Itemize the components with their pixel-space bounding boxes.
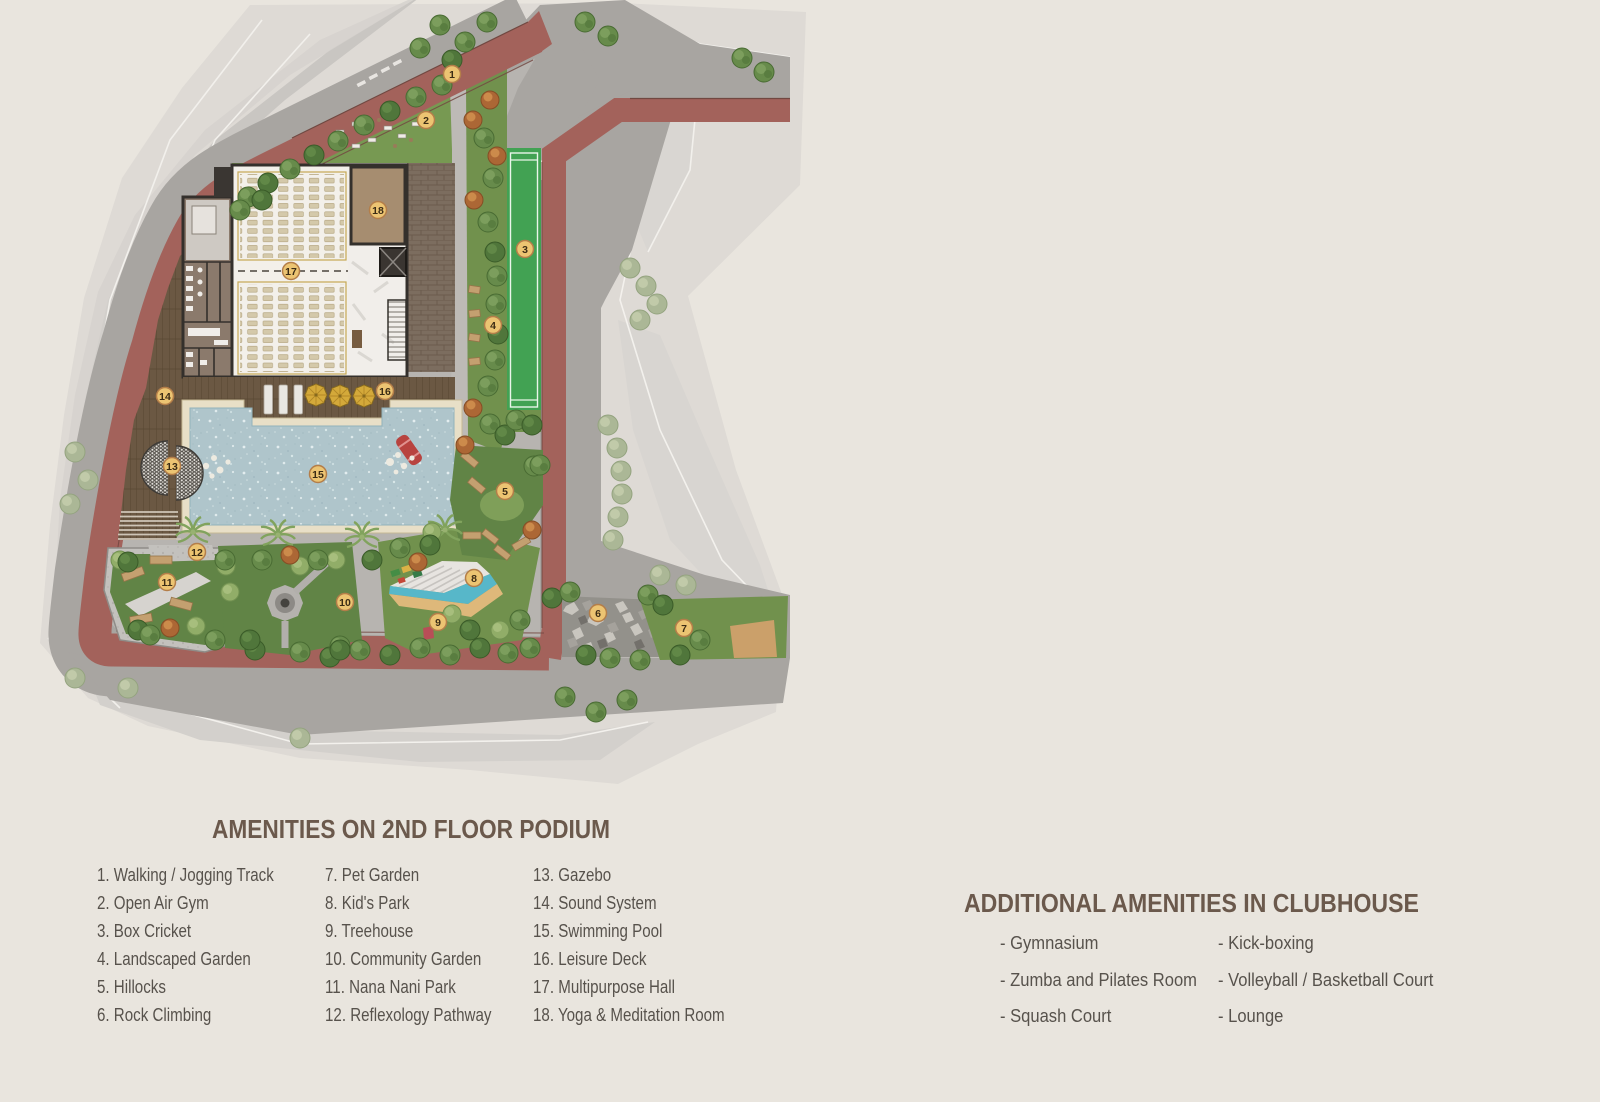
svg-text:14: 14 xyxy=(159,391,171,403)
svg-text:5: 5 xyxy=(502,486,508,498)
svg-text:17: 17 xyxy=(285,266,297,278)
svg-text:15: 15 xyxy=(312,469,324,481)
svg-text:8: 8 xyxy=(471,573,477,585)
svg-text:3: 3 xyxy=(522,244,528,256)
svg-text:9: 9 xyxy=(435,617,441,629)
svg-text:6: 6 xyxy=(595,608,601,620)
svg-text:12: 12 xyxy=(191,547,203,559)
svg-text:4: 4 xyxy=(490,320,496,332)
svg-text:11: 11 xyxy=(161,577,172,589)
svg-text:10: 10 xyxy=(339,597,351,609)
svg-text:1: 1 xyxy=(449,69,455,81)
svg-text:2: 2 xyxy=(423,115,429,127)
svg-text:7: 7 xyxy=(681,623,687,635)
svg-text:18: 18 xyxy=(372,205,384,217)
svg-text:13: 13 xyxy=(166,461,178,473)
svg-text:16: 16 xyxy=(379,386,391,398)
